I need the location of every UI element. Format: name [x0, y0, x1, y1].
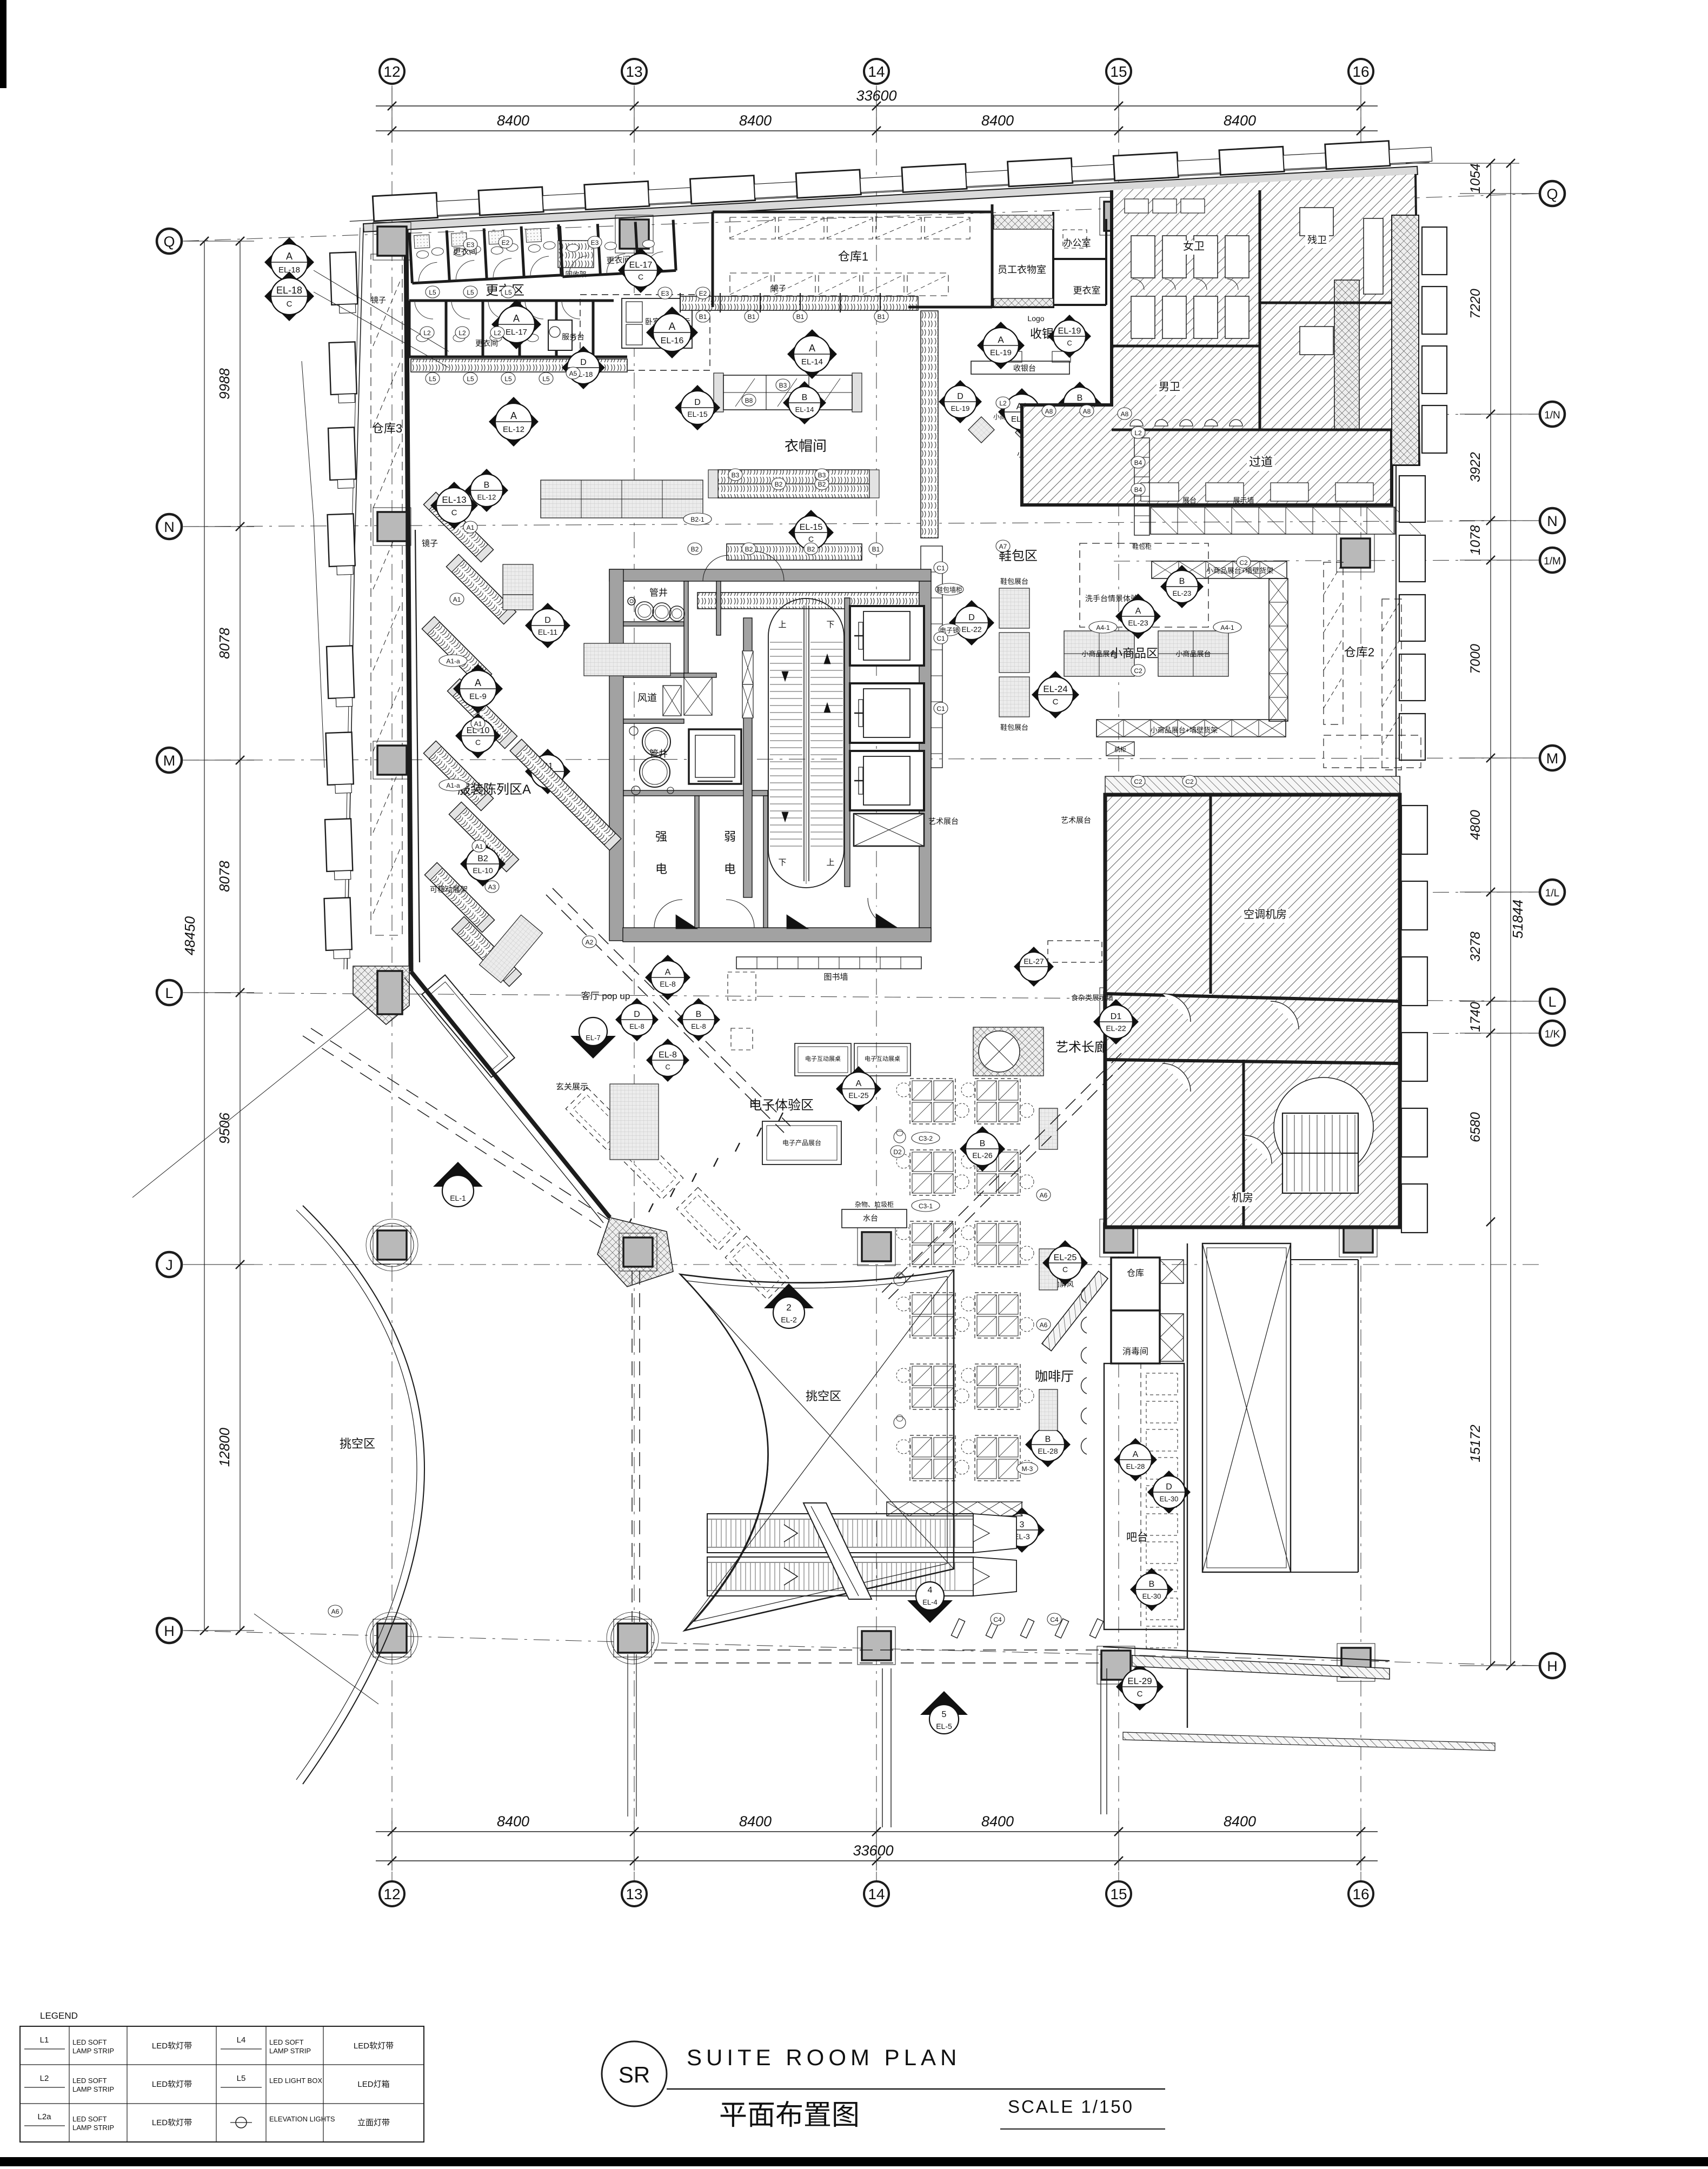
svg-text:EL-22: EL-22 [1106, 1024, 1126, 1033]
svg-text:8400: 8400 [981, 112, 1014, 129]
svg-text:9988: 9988 [216, 368, 232, 400]
svg-text:L5: L5 [542, 375, 550, 383]
svg-text:展示墙: 展示墙 [1233, 496, 1254, 504]
svg-text:EL-25: EL-25 [1054, 1253, 1077, 1262]
svg-text:Q: Q [1546, 186, 1558, 202]
svg-text:15: 15 [1110, 1886, 1127, 1902]
svg-text:EL-22: EL-22 [961, 625, 982, 634]
svg-text:8400: 8400 [1224, 112, 1256, 129]
svg-text:杂物、垃圾柜: 杂物、垃圾柜 [855, 1200, 894, 1208]
svg-text:EL-29: EL-29 [1127, 1676, 1152, 1686]
svg-text:3278: 3278 [1468, 932, 1483, 962]
svg-text:A: A [998, 335, 1004, 345]
svg-text:E3: E3 [467, 241, 475, 249]
svg-text:EL-13: EL-13 [442, 495, 466, 505]
svg-text:A: A [809, 343, 815, 354]
svg-text:8400: 8400 [739, 112, 772, 129]
svg-text:EL-19: EL-19 [1058, 327, 1081, 336]
svg-text:12: 12 [383, 1886, 400, 1902]
svg-text:EL-28: EL-28 [1038, 1447, 1058, 1455]
svg-text:A: A [1133, 1450, 1139, 1459]
svg-text:C2: C2 [1185, 778, 1194, 786]
svg-text:D: D [634, 1010, 640, 1019]
svg-text:EL-24: EL-24 [1043, 684, 1067, 694]
svg-text:消毒间: 消毒间 [1122, 1347, 1148, 1356]
svg-text:12: 12 [383, 63, 400, 80]
svg-text:ELEVATION LIGHTS: ELEVATION LIGHTS [269, 2115, 335, 2123]
svg-text:C1: C1 [936, 705, 945, 713]
svg-text:C3-1: C3-1 [919, 1202, 933, 1210]
svg-text:D: D [968, 613, 975, 622]
svg-text:8078: 8078 [216, 861, 232, 892]
svg-text:衣帽间: 衣帽间 [785, 438, 827, 454]
svg-text:EL-8: EL-8 [659, 1050, 677, 1060]
svg-text:C1: C1 [936, 564, 945, 572]
svg-text:J: J [165, 1257, 173, 1273]
svg-text:挑空区: 挑空区 [806, 1389, 841, 1403]
svg-text:EL-11: EL-11 [538, 628, 558, 636]
svg-text:D1: D1 [1111, 1012, 1122, 1021]
svg-text:L5: L5 [429, 375, 436, 383]
svg-text:C4: C4 [993, 1616, 1002, 1624]
svg-text:SR: SR [619, 2062, 650, 2087]
svg-text:E2: E2 [502, 239, 510, 247]
svg-text:EL-17: EL-17 [506, 328, 527, 337]
svg-text:15172: 15172 [1468, 1425, 1483, 1462]
svg-text:LED SOFT: LED SOFT [269, 2038, 304, 2046]
svg-text:L1: L1 [40, 2035, 49, 2045]
svg-text:上: 上 [826, 858, 834, 867]
svg-text:EL-2: EL-2 [781, 1315, 797, 1324]
svg-text:L2: L2 [999, 400, 1007, 407]
svg-text:仓库3: 仓库3 [372, 422, 402, 435]
svg-text:15: 15 [1110, 63, 1127, 80]
svg-text:L5: L5 [429, 289, 436, 296]
svg-text:EL-30: EL-30 [1142, 1592, 1161, 1600]
svg-text:7220: 7220 [1468, 289, 1483, 319]
svg-text:管井: 管井 [649, 588, 668, 598]
svg-text:B1: B1 [878, 313, 886, 321]
svg-text:EL-27: EL-27 [1024, 957, 1044, 966]
svg-text:艺术展台: 艺术展台 [928, 817, 959, 826]
svg-text:电子互动展桌: 电子互动展桌 [865, 1055, 900, 1062]
svg-text:L5: L5 [467, 375, 474, 383]
svg-text:吧台: 吧台 [1126, 1531, 1148, 1543]
svg-text:电子体验区: 电子体验区 [749, 1098, 814, 1113]
svg-text:4800: 4800 [1468, 810, 1483, 840]
svg-text:5: 5 [942, 1710, 947, 1719]
svg-text:1/L: 1/L [1545, 888, 1559, 899]
svg-text:33600: 33600 [853, 1842, 893, 1859]
svg-text:1/M: 1/M [1544, 556, 1561, 567]
svg-text:B3: B3 [732, 471, 740, 479]
svg-text:镜子: 镜子 [771, 284, 786, 292]
svg-text:小商品展台+墙壁货架: 小商品展台+墙壁货架 [1151, 726, 1218, 734]
svg-text:M: M [1546, 750, 1559, 767]
svg-text:电子产品展台: 电子产品展台 [782, 1139, 821, 1147]
svg-text:A: A [1135, 607, 1141, 616]
svg-text:L: L [1548, 994, 1556, 1010]
svg-text:3922: 3922 [1468, 452, 1483, 482]
svg-text:C: C [808, 535, 814, 543]
svg-text:强: 强 [655, 830, 667, 843]
svg-text:33600: 33600 [856, 88, 896, 104]
svg-text:EL-5: EL-5 [936, 1722, 952, 1731]
svg-text:LED软灯带: LED软灯带 [152, 2118, 192, 2127]
svg-text:EL-14: EL-14 [795, 405, 814, 414]
svg-text:A: A [669, 321, 676, 332]
svg-text:A: A [665, 968, 671, 977]
svg-text:更衣室: 更衣室 [1073, 285, 1101, 296]
svg-text:13: 13 [626, 1886, 642, 1902]
svg-text:C: C [475, 738, 481, 747]
svg-text:图书墙: 图书墙 [823, 973, 848, 982]
svg-text:鞋包展台: 鞋包展台 [1000, 723, 1028, 731]
svg-text:水台: 水台 [863, 1214, 878, 1222]
svg-text:8400: 8400 [497, 112, 529, 129]
svg-text:服务台: 服务台 [562, 332, 584, 341]
svg-text:B2: B2 [818, 481, 826, 488]
svg-text:M: M [163, 753, 176, 769]
svg-text:上: 上 [778, 620, 786, 629]
svg-text:A1: A1 [474, 720, 482, 728]
svg-text:D: D [957, 392, 963, 401]
svg-text:C1: C1 [936, 635, 945, 642]
svg-text:L2: L2 [1134, 429, 1142, 437]
svg-text:EL-25: EL-25 [848, 1091, 869, 1100]
svg-text:E3: E3 [661, 290, 669, 297]
svg-text:D: D [694, 398, 701, 407]
svg-text:C2: C2 [1134, 778, 1142, 786]
svg-text:C: C [451, 508, 457, 517]
svg-text:A6: A6 [1040, 1321, 1048, 1329]
svg-text:B2-1: B2-1 [690, 516, 705, 523]
svg-text:L4: L4 [237, 2035, 246, 2045]
svg-text:B: B [802, 393, 808, 402]
svg-text:E3: E3 [591, 239, 599, 247]
svg-text:EL-8: EL-8 [691, 1022, 706, 1030]
svg-text:D: D [1166, 1482, 1172, 1492]
svg-text:EL-12: EL-12 [477, 493, 496, 501]
svg-text:电: 电 [724, 862, 736, 876]
svg-text:48450: 48450 [182, 916, 198, 955]
svg-text:小商品展台: 小商品展台 [1175, 650, 1211, 658]
svg-text:残卫: 残卫 [1307, 235, 1327, 245]
svg-text:L5: L5 [237, 2074, 246, 2083]
svg-text:13: 13 [626, 63, 642, 80]
svg-text:可移动展架: 可移动展架 [430, 885, 468, 894]
svg-text:Logo: Logo [1027, 314, 1044, 323]
svg-text:挑空区: 挑空区 [340, 1437, 375, 1451]
svg-text:客厅 pop up: 客厅 pop up [581, 991, 630, 1001]
svg-text:A: A [513, 313, 520, 324]
svg-text:EL-12: EL-12 [503, 425, 524, 434]
svg-text:过道: 过道 [1249, 455, 1273, 469]
svg-text:LED SOFT: LED SOFT [72, 2077, 107, 2085]
svg-text:B: B [1045, 1435, 1051, 1444]
svg-text:机房: 机房 [1232, 1192, 1253, 1204]
svg-text:LAMP STRIP: LAMP STRIP [72, 2047, 114, 2055]
svg-text:A4-1: A4-1 [1096, 624, 1110, 631]
svg-text:EL-30: EL-30 [1160, 1495, 1179, 1503]
svg-text:L2: L2 [494, 329, 501, 337]
svg-text:B3: B3 [818, 471, 826, 479]
svg-text:C2: C2 [1239, 559, 1248, 567]
svg-text:C: C [1067, 339, 1072, 347]
svg-text:EL-18: EL-18 [276, 285, 302, 296]
svg-text:C2: C2 [1134, 667, 1142, 675]
svg-text:A1-a: A1-a [446, 782, 460, 789]
svg-text:LED软灯带: LED软灯带 [354, 2041, 394, 2051]
svg-text:下: 下 [778, 858, 786, 867]
svg-text:12800: 12800 [216, 1427, 232, 1467]
svg-text:A7: A7 [999, 543, 1007, 550]
svg-text:51844: 51844 [1510, 900, 1526, 939]
svg-text:B2: B2 [807, 545, 815, 553]
svg-text:L2: L2 [423, 329, 431, 337]
svg-text:风道: 风道 [637, 693, 657, 703]
svg-text:SCALE 1/150: SCALE 1/150 [1008, 2097, 1134, 2117]
svg-text:男卫: 男卫 [1159, 381, 1180, 393]
svg-text:H: H [1547, 1658, 1558, 1674]
svg-text:EL-17: EL-17 [629, 261, 653, 270]
svg-text:SUITE ROOM PLAN: SUITE ROOM PLAN [687, 2045, 961, 2070]
svg-text:L: L [165, 985, 173, 1001]
svg-text:女卫: 女卫 [1183, 240, 1205, 252]
svg-text:B4: B4 [1134, 486, 1142, 494]
svg-text:14: 14 [868, 1886, 885, 1902]
svg-text:C: C [1062, 1265, 1068, 1274]
svg-text:N: N [164, 519, 175, 535]
svg-text:镜子: 镜子 [371, 296, 386, 304]
svg-text:B2: B2 [775, 481, 783, 488]
svg-text:1740: 1740 [1468, 1002, 1483, 1032]
svg-text:展台: 展台 [1182, 496, 1197, 504]
svg-text:B: B [484, 481, 490, 490]
svg-text:A5: A5 [569, 370, 577, 377]
svg-text:EL-16: EL-16 [661, 336, 684, 345]
svg-text:D: D [580, 358, 587, 367]
svg-text:A1: A1 [467, 524, 475, 531]
svg-text:B4: B4 [1134, 459, 1142, 467]
svg-text:8078: 8078 [216, 628, 232, 659]
svg-text:B: B [980, 1139, 986, 1148]
svg-text:EL-7: EL-7 [586, 1034, 600, 1042]
svg-text:L2: L2 [458, 329, 466, 337]
svg-text:8400: 8400 [1224, 1813, 1256, 1829]
svg-text:玄关展示: 玄关展示 [556, 1082, 588, 1092]
svg-text:Q: Q [163, 234, 175, 250]
svg-text:A1-a: A1-a [446, 657, 460, 665]
svg-text:14: 14 [868, 63, 885, 80]
svg-text:7000: 7000 [1468, 644, 1483, 674]
svg-text:E2: E2 [699, 290, 707, 297]
svg-text:D: D [544, 616, 551, 625]
svg-text:EL-28: EL-28 [1126, 1462, 1145, 1471]
svg-text:服装陈列区A: 服装陈列区A [457, 782, 531, 797]
svg-text:EL-23: EL-23 [1128, 618, 1148, 627]
svg-text:EL-26: EL-26 [972, 1151, 993, 1160]
svg-text:1/N: 1/N [1544, 410, 1560, 421]
svg-text:1078: 1078 [1468, 525, 1483, 555]
svg-text:B1: B1 [872, 545, 880, 553]
svg-text:镜子: 镜子 [422, 538, 438, 548]
svg-text:C: C [287, 300, 293, 309]
svg-text:LED灯箱: LED灯箱 [357, 2080, 389, 2089]
svg-text:弱: 弱 [724, 830, 736, 843]
svg-text:A6: A6 [331, 1608, 340, 1615]
svg-text:1054: 1054 [1468, 163, 1483, 194]
svg-text:艺术长廊: 艺术长廊 [1055, 1040, 1107, 1055]
svg-text:EL-23: EL-23 [1173, 589, 1192, 597]
svg-text:1/K: 1/K [1545, 1029, 1560, 1040]
svg-text:N: N [1547, 513, 1558, 529]
svg-text:L5: L5 [467, 289, 474, 296]
svg-text:A8: A8 [1045, 408, 1053, 415]
svg-text:6580: 6580 [1468, 1112, 1483, 1142]
svg-text:B: B [696, 1010, 702, 1019]
svg-text:L5: L5 [504, 289, 512, 296]
svg-text:A3: A3 [488, 883, 496, 891]
svg-text:A1: A1 [453, 596, 461, 603]
svg-text:B: B [1077, 394, 1083, 403]
svg-text:A8: A8 [1121, 410, 1129, 418]
svg-text:A: A [286, 251, 293, 262]
svg-text:C: C [1137, 1689, 1143, 1699]
svg-text:H: H [164, 1623, 175, 1639]
svg-text:A6: A6 [1040, 1192, 1048, 1199]
svg-text:8400: 8400 [981, 1813, 1014, 1829]
svg-text:C3-2: C3-2 [919, 1135, 933, 1142]
svg-text:电子互动展桌: 电子互动展桌 [805, 1055, 841, 1062]
svg-text:仓库1: 仓库1 [838, 250, 868, 263]
svg-text:员工衣物室: 员工衣物室 [998, 264, 1046, 275]
svg-text:更衣间: 更衣间 [475, 339, 498, 348]
svg-text:EL-15: EL-15 [800, 523, 823, 532]
svg-text:EL-19: EL-19 [951, 404, 970, 412]
svg-text:B1: B1 [748, 313, 756, 321]
svg-text:B2: B2 [477, 854, 488, 863]
svg-text:鞋包展台: 鞋包展台 [1000, 577, 1028, 586]
svg-text:电: 电 [655, 862, 667, 876]
svg-text:B1: B1 [699, 313, 707, 321]
svg-text:EL-1: EL-1 [450, 1194, 466, 1202]
svg-text:3: 3 [1020, 1520, 1025, 1529]
svg-text:L2: L2 [40, 2074, 49, 2083]
svg-text:A: A [856, 1079, 862, 1088]
svg-text:收银台: 收银台 [1013, 364, 1036, 372]
svg-text:LEGEND: LEGEND [40, 2011, 78, 2021]
svg-text:16: 16 [1352, 63, 1369, 80]
svg-text:咖啡厅: 咖啡厅 [1035, 1369, 1074, 1384]
svg-text:食杂类展示墙: 食杂类展示墙 [1071, 994, 1113, 1002]
svg-text:空调机房: 空调机房 [1244, 908, 1287, 921]
svg-text:EL-8: EL-8 [660, 980, 676, 988]
svg-text:B: B [1149, 1580, 1155, 1589]
svg-text:EL-14: EL-14 [801, 357, 823, 367]
svg-text:EL-8: EL-8 [629, 1022, 644, 1030]
svg-text:LAMP STRIP: LAMP STRIP [269, 2047, 311, 2055]
svg-text:仓库: 仓库 [1127, 1268, 1144, 1278]
svg-text:EL-15: EL-15 [687, 410, 708, 418]
svg-text:EL-19: EL-19 [990, 348, 1012, 357]
svg-text:LED LIGHT BOX: LED LIGHT BOX [269, 2077, 322, 2085]
svg-text:A4-1: A4-1 [1220, 624, 1234, 631]
svg-text:16: 16 [1352, 1886, 1369, 1902]
svg-text:B: B [1179, 577, 1185, 586]
svg-text:EL-9: EL-9 [469, 692, 487, 701]
svg-text:EL-10: EL-10 [473, 866, 493, 875]
svg-text:LED SOFT: LED SOFT [72, 2115, 107, 2123]
svg-text:A2: A2 [586, 939, 594, 946]
svg-text:LED软灯带: LED软灯带 [152, 2041, 192, 2051]
svg-text:A8: A8 [1083, 408, 1091, 415]
svg-text:L5: L5 [504, 375, 512, 383]
svg-text:B1: B1 [796, 313, 805, 321]
svg-text:小商品展台+墙壁货架: 小商品展台+墙壁货架 [1206, 567, 1274, 575]
svg-text:2: 2 [786, 1302, 791, 1313]
svg-text:艺术展台: 艺术展台 [1061, 816, 1091, 824]
svg-text:8400: 8400 [497, 1813, 529, 1829]
svg-text:鞋包墙柜: 鞋包墙柜 [936, 586, 962, 594]
svg-text:LED SOFT: LED SOFT [72, 2038, 107, 2046]
svg-text:C: C [638, 272, 643, 281]
svg-text:8400: 8400 [739, 1813, 772, 1829]
svg-text:小商品区: 小商品区 [1111, 647, 1158, 660]
svg-text:平面布置图: 平面布置图 [719, 2100, 860, 2131]
svg-text:C: C [665, 1063, 670, 1071]
svg-text:EL-4: EL-4 [922, 1598, 937, 1606]
svg-text:A1: A1 [475, 843, 483, 850]
svg-text:C4: C4 [1050, 1616, 1059, 1624]
svg-text:仓库2: 仓库2 [1344, 646, 1374, 659]
svg-text:LAMP STRIP: LAMP STRIP [72, 2124, 114, 2132]
svg-text:机柜: 机柜 [1114, 746, 1126, 753]
svg-text:M-3: M-3 [1022, 1465, 1033, 1473]
svg-text:B2: B2 [691, 545, 699, 553]
svg-text:下: 下 [826, 620, 834, 629]
svg-text:L2a: L2a [37, 2112, 51, 2121]
svg-text:D2: D2 [893, 1148, 902, 1156]
svg-text:A: A [510, 410, 517, 421]
svg-text:B3: B3 [779, 382, 787, 389]
svg-text:立面灯带: 立面灯带 [357, 2118, 390, 2127]
svg-text:C: C [1053, 697, 1059, 707]
svg-text:B8: B8 [745, 397, 753, 404]
svg-text:A: A [475, 677, 481, 688]
svg-text:LAMP STRIP: LAMP STRIP [72, 2085, 114, 2093]
svg-text:4: 4 [928, 1586, 933, 1595]
svg-text:LED软灯带: LED软灯带 [152, 2080, 192, 2089]
svg-text:B2: B2 [745, 545, 753, 553]
